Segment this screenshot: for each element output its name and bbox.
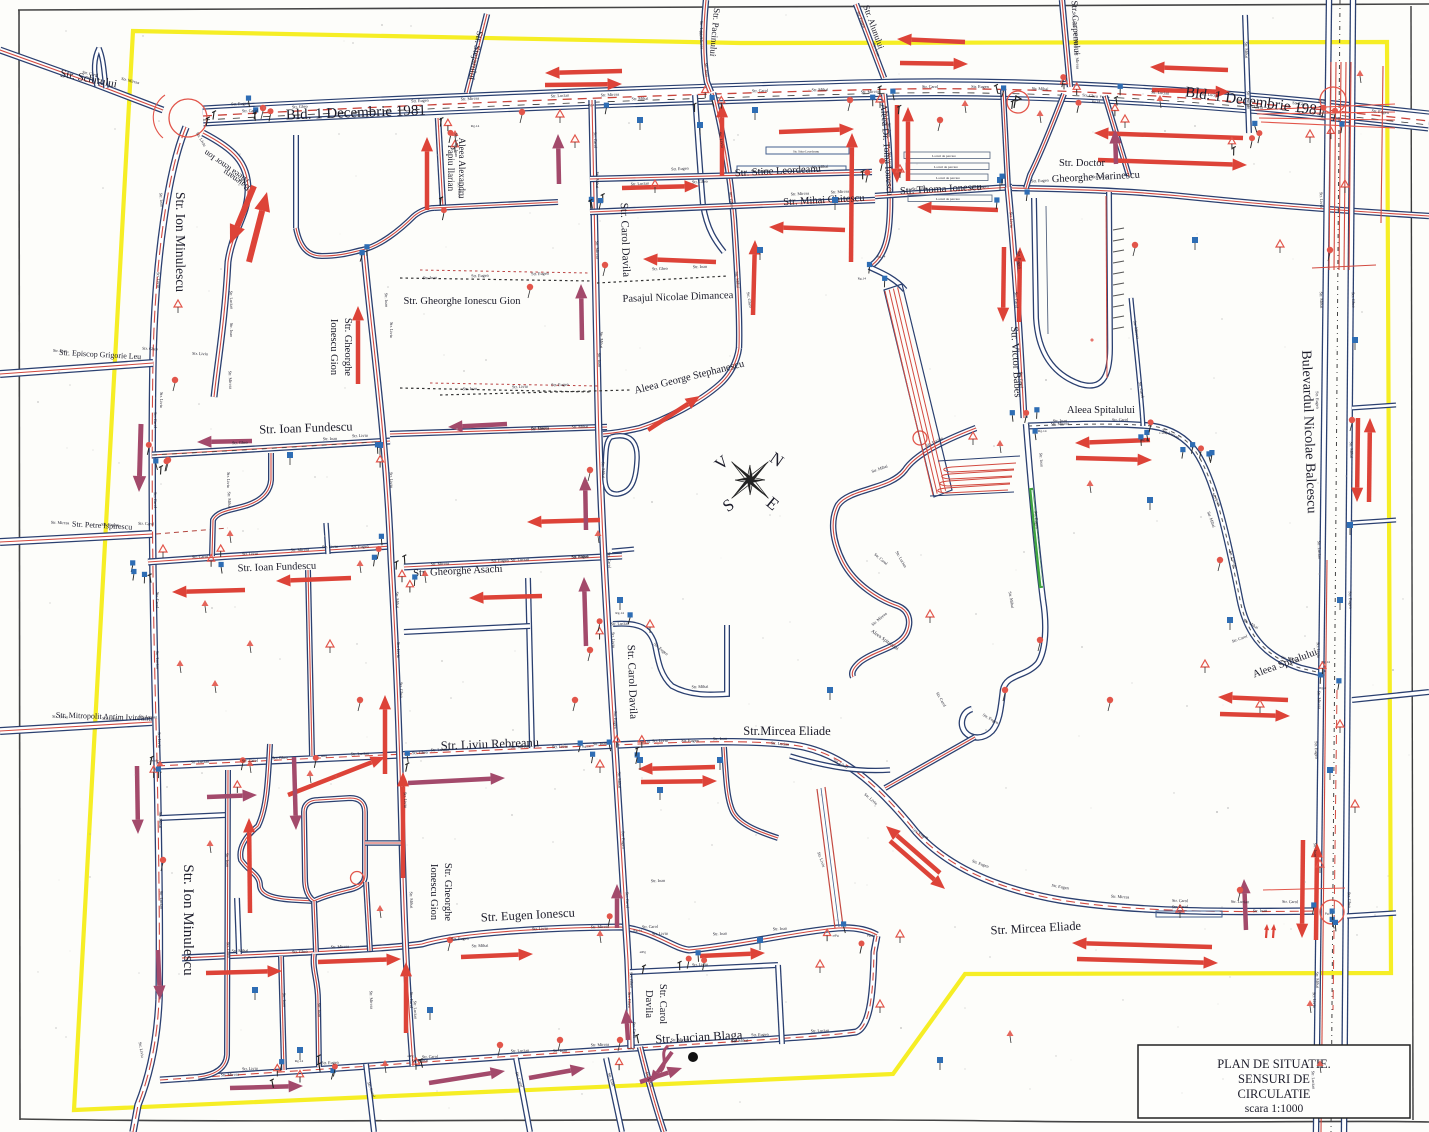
svg-text:Str. Mihai: Str. Mihai [411,1058,429,1064]
svg-text:Str. Gheo: Str. Gheo [629,972,635,988]
svg-text:Rg.14: Rg.14 [633,928,642,932]
svg-text:Rg.14: Rg.14 [1141,438,1150,442]
svg-text:Str. Ioan: Str. Ioan [704,63,710,78]
svg-text:Str. Mihai: Str. Mihai [1349,441,1355,459]
svg-text:Locuri de parcare: Locuri de parcare [936,176,960,180]
svg-text:atPg: atPg [640,950,646,954]
svg-text:Str. Stioe Leordeanu: Str. Stioe Leordeanu [793,150,820,154]
svg-text:Str. Gheo: Str. Gheo [1351,292,1357,308]
svg-text:Str. Eugen: Str. Eugen [1017,251,1023,270]
svg-text:Str. Eugen: Str. Eugen [681,738,699,743]
svg-text:Str. Gheorghe: Str. Gheorghe [342,318,353,376]
svg-text:Str. Liviu: Str. Liviu [532,926,549,932]
svg-text:Str. Ioan: Str. Ioan [53,348,68,354]
svg-text:SENSURI DE: SENSURI DE [1238,1072,1310,1086]
svg-text:Str. Mihai: Str. Mihai [601,461,607,479]
svg-text:Str. Ion Minulescu: Str. Ion Minulescu [173,192,188,292]
svg-text:Str. Eugen: Str. Eugen [751,168,770,174]
svg-text:Str. Mihai: Str. Mihai [811,164,829,170]
svg-text:Pg.4: Pg.4 [1319,686,1326,690]
svg-text:Str. Gheo: Str. Gheo [292,104,308,110]
svg-text:Str. Gheo: Str. Gheo [1347,892,1353,908]
svg-text:Str. Mihai: Str. Mihai [731,1038,749,1044]
svg-text:Str. Ioan: Str. Ioan [384,293,390,308]
svg-text:Str. Doctor: Str. Doctor [1059,158,1106,169]
svg-text:Str. Ioan: Str. Ioan [1313,843,1319,858]
svg-text:Str. Lucian: Str. Lucian [191,759,210,765]
svg-text:Str. Mihai: Str. Mihai [595,172,600,190]
svg-text:Str. Lucian: Str. Lucian [1231,899,1250,904]
svg-text:Str. Eugen: Str. Eugen [471,273,490,279]
svg-text:Str. Mircea: Str. Mircea [228,371,234,390]
svg-text:Str. Gheo: Str. Gheo [692,179,708,185]
svg-text:CIRCULATIE: CIRCULATIE [1238,1087,1311,1101]
svg-text:Str. Mihai: Str. Mihai [631,96,649,102]
svg-text:Str. Mircea: Str. Mircea [591,1042,610,1048]
svg-text:Str. Eugen: Str. Eugen [551,382,570,388]
svg-text:Str. Mircea: Str. Mircea [830,189,849,195]
svg-text:Str. Lucian: Str. Lucian [699,21,704,40]
svg-text:Str. Carol: Str. Carol [657,984,668,1024]
svg-text:Str. Gheo: Str. Gheo [412,750,428,756]
svg-text:Str. Gheorghe Ionescu Gion: Str. Gheorghe Ionescu Gion [403,296,521,307]
svg-text:Rg.14: Rg.14 [1092,100,1101,104]
svg-text:Str. Liviu: Str. Liviu [226,472,231,489]
svg-text:Str. Liviu: Str. Liviu [156,272,162,289]
svg-text:Str. Lucian: Str. Lucian [139,714,159,720]
svg-text:Rg.14: Rg.14 [582,744,591,748]
svg-text:Str. Mircea: Str. Mircea [511,744,530,750]
svg-text:Str. Mircea: Str. Mircea [1075,50,1081,69]
svg-text:Str. Ioan: Str. Ioan [317,1003,323,1018]
svg-text:Str. Carol: Str. Carol [607,552,613,569]
svg-text:Str. Liviu: Str. Liviu [102,716,119,722]
svg-text:Str. Eugen: Str. Eugen [1031,178,1050,184]
svg-text:Str. Eugen: Str. Eugen [671,166,690,172]
svg-text:Str. Lucian: Str. Lucian [511,1048,530,1054]
svg-text:Str. Liviu: Str. Liviu [242,1066,259,1072]
svg-text:Str. Mihai: Str. Mihai [1074,31,1080,49]
svg-text:Str. Lucian: Str. Lucian [351,751,370,757]
svg-text:Str. Mihai: Str. Mihai [1244,41,1250,59]
svg-text:Str. Liviu: Str. Liviu [157,732,162,749]
svg-text:Str. Liviu: Str. Liviu [52,714,69,720]
svg-text:Str. Liviu: Str. Liviu [888,152,894,169]
svg-text:Str. Ioan: Str. Ioan [693,264,708,270]
svg-text:Str. Lucian: Str. Lucian [631,180,651,186]
svg-text:Str. Gheo: Str. Gheo [272,755,288,761]
svg-text:Str. Mihai: Str. Mihai [158,812,163,830]
svg-text:Str. Carol: Str. Carol [138,521,155,527]
svg-text:Str. Lucian: Str. Lucian [551,92,571,98]
svg-text:Str. Carol: Str. Carol [593,132,599,149]
svg-text:Str. Lucian: Str. Lucian [1317,541,1323,560]
svg-text:Str. Mihai: Str. Mihai [599,332,604,350]
svg-text:Str. Carol: Str. Carol [1112,417,1129,422]
svg-text:Str. Eugen: Str. Eugen [621,831,627,850]
svg-text:Str. Mircea: Str. Mircea [221,1072,240,1078]
svg-text:Str. Gheo: Str. Gheo [399,682,405,698]
svg-text:Str. Carol: Str. Carol [1172,898,1189,903]
svg-text:Str. Eugen: Str. Eugen [531,271,550,277]
svg-text:Str. Mircea: Str. Mircea [369,991,375,1010]
svg-text:Str. Mihai: Str. Mihai [471,943,489,949]
svg-text:Str. Liviu: Str. Liviu [652,931,669,937]
svg-text:Str. Liviu: Str. Liviu [159,392,164,409]
svg-text:Ionescu Gion: Ionescu Gion [328,319,339,376]
svg-text:Str. Eugen: Str. Eugen [451,936,470,942]
svg-text:Str. Carol: Str. Carol [242,758,259,764]
svg-text:Str. Liviu: Str. Liviu [389,322,394,339]
svg-text:Str. Mihai: Str. Mihai [409,891,415,909]
svg-text:Locuri de parcare: Locuri de parcare [936,197,960,201]
svg-text:Str. Carol: Str. Carol [1014,292,1020,309]
svg-text:Str. Ioan: Str. Ioan [1253,908,1268,914]
svg-text:Str. Gheo: Str. Gheo [652,266,668,272]
svg-text:Str. Lucian: Str. Lucian [511,557,530,563]
svg-text:Str. Eugen: Str. Eugen [231,101,250,107]
svg-text:Str. Liviu: Str. Liviu [692,962,709,968]
svg-text:Aleea Spitalului: Aleea Spitalului [1067,405,1135,416]
svg-text:Rg.14: Rg.14 [858,277,867,281]
svg-text:Str. Gheo: Str. Gheo [232,440,248,446]
svg-text:Str. Mircea: Str. Mircea [600,92,619,98]
svg-text:Rg.14: Rg.14 [471,124,480,128]
svg-text:Str. Liviu: Str. Liviu [512,384,529,390]
svg-text:Str. Ioan: Str. Ioan [597,353,603,368]
svg-text:Str. Carol: Str. Carol [409,992,414,1009]
svg-text:Str. Liviu: Str. Liviu [1319,192,1325,209]
svg-text:Locuri de parcare: Locuri de parcare [934,165,958,169]
svg-text:Str. Carol: Str. Carol [632,1022,638,1039]
svg-text:Str. Mircea: Str. Mircea [51,520,70,526]
svg-text:Str. Mircea: Str. Mircea [790,191,809,197]
svg-text:Str. Ioan: Str. Ioan [225,853,231,868]
svg-text:Str. Carol: Str. Carol [153,412,158,429]
svg-text:Str. Lucian: Str. Lucian [1311,1071,1317,1090]
svg-text:Str. Ioan: Str. Ioan [463,386,478,392]
svg-text:Rg.14: Rg.14 [877,255,886,259]
svg-text:Str. Ioan: Str. Ioan [593,741,608,747]
svg-text:Str. Liviu: Str. Liviu [389,472,395,489]
svg-text:Str. Mircea: Str. Mircea [1051,421,1070,427]
svg-text:PLAN DE SITUATIE.: PLAN DE SITUATIE. [1217,1057,1331,1071]
svg-text:Str. Mihai: Str. Mihai [1032,86,1050,92]
svg-text:atPg: atPg [833,934,839,938]
svg-text:Pg.4: Pg.4 [1100,95,1107,99]
svg-text:Str. Lucian: Str. Lucian [611,621,630,627]
svg-text:Str. Ioan: Str. Ioan [282,993,288,1008]
svg-text:Str. Eugen: Str. Eugen [411,98,430,104]
svg-text:Str. Gheo: Str. Gheo [226,942,232,958]
svg-text:Rg.14: Rg.14 [1038,429,1047,433]
svg-text:Str. Liviu: Str. Liviu [912,186,929,192]
svg-text:Str. Carol: Str. Carol [922,84,939,89]
svg-text:1 stalp: 1 stalp [149,759,158,763]
svg-text:Str. Carol: Str. Carol [192,554,209,560]
svg-text:Str. Ioan: Str. Ioan [229,323,234,338]
svg-text:Str. Liviu: Str. Liviu [1092,174,1109,180]
svg-text:Str. Mircea: Str. Mircea [1111,894,1130,900]
svg-text:Str. Eugen: Str. Eugen [971,84,989,89]
svg-text:Str. Mircea: Str. Mircea [291,547,310,553]
svg-text:Str. Gheo: Str. Gheo [142,346,158,352]
svg-text:Str. Mircea: Str. Mircea [671,1037,690,1043]
svg-text:Str. Carol: Str. Carol [752,88,769,94]
svg-text:Str. Liviu: Str. Liviu [352,433,369,439]
svg-text:Str. Ioan: Str. Ioan [423,275,438,281]
svg-text:Str. Mihai: Str. Mihai [231,948,249,954]
svg-text:Ionescu Gion: Ionescu Gion [428,864,439,921]
svg-text:Str. Carol: Str. Carol [642,924,659,930]
svg-text:Str. Gheo: Str. Gheo [457,182,463,198]
svg-text:Str. Mihai: Str. Mihai [617,771,623,789]
svg-text:Str. Lucian: Str. Lucian [229,291,235,310]
svg-text:Str. Mihai: Str. Mihai [395,591,401,609]
svg-text:Davila: Davila [643,990,654,1018]
svg-text:Str. Lucian: Str. Lucian [431,747,450,753]
svg-text:Str. Mircea: Str. Mircea [591,924,610,930]
svg-text:Str. Ioan: Str. Ioan [713,931,728,937]
svg-text:Str. Eugen: Str. Eugen [351,544,370,550]
svg-text:Str. Ioan: Str. Ioan [323,436,338,442]
svg-text:Str. Ioan: Str. Ioan [713,736,728,742]
svg-text:Locuri de parcare: Locuri de parcare [932,154,956,158]
svg-text:Str. Ioan: Str. Ioan [454,143,459,158]
svg-text:Str. Liviu: Str. Liviu [1072,12,1078,29]
svg-text:Str. Eugen: Str. Eugen [751,1032,770,1038]
svg-text:Str. Carol: Str. Carol [1172,904,1189,910]
svg-text:Str. Eugen: Str. Eugen [321,1060,340,1066]
svg-text:Str. Mihai: Str. Mihai [1315,971,1321,989]
svg-text:Str. Carol: Str. Carol [155,592,160,609]
svg-text:Rg.14: Rg.14 [615,611,624,615]
svg-text:Str. Eugen: Str. Eugen [613,711,618,729]
svg-text:Pg.4: Pg.4 [588,103,595,107]
svg-text:Str. Mihai: Str. Mihai [691,684,709,690]
svg-text:Str. Eugen: Str. Eugen [101,522,120,528]
svg-text:Str. Mihai: Str. Mihai [227,491,233,509]
svg-text:atPg: atPg [628,1047,634,1051]
svg-text:Str. Eugen: Str. Eugen [491,558,510,564]
svg-text:Str. Liviu: Str. Liviu [652,738,669,744]
svg-text:Str. Liviu: Str. Liviu [396,642,401,659]
svg-text:Str. Eugen: Str. Eugen [1315,391,1321,410]
svg-text:Str. Mihai: Str. Mihai [571,554,589,560]
svg-text:Str. Mihai: Str. Mihai [811,87,829,93]
svg-text:Str. Liviu: Str. Liviu [1009,212,1015,229]
svg-text:Str. Liviu: Str. Liviu [1312,992,1318,1009]
svg-text:Str. Liviu: Str. Liviu [322,544,339,550]
svg-text:Str. Mircea: Str. Mircea [1317,691,1323,710]
svg-text:Str. Mircea: Str. Mircea [331,944,350,950]
svg-text:Str. Eugen: Str. Eugen [971,184,990,190]
svg-text:Str. Carol: Str. Carol [1282,899,1299,904]
svg-text:Str. Gheorghe: Str. Gheorghe [442,863,453,921]
svg-text:Str. Carol: Str. Carol [625,892,631,909]
svg-text:Str. Mihai: Str. Mihai [1319,291,1325,309]
svg-text:Str. Ioan: Str. Ioan [887,123,893,138]
svg-text:Str. Liviu: Str. Liviu [552,744,569,750]
svg-text:Rg.14: Rg.14 [295,1059,304,1063]
svg-text:Str. Gheo: Str. Gheo [292,949,308,955]
svg-text:Str. Eugen: Str. Eugen [1348,591,1354,610]
svg-text:Str. Mircea: Str. Mircea [531,426,550,432]
svg-text:Pg.61: Pg.61 [1318,98,1326,102]
svg-text:Str. Carol: Str. Carol [153,492,158,509]
svg-text:scara 1:1000: scara 1:1000 [1245,1103,1304,1115]
svg-text:Str. Mircea: Str. Mircea [595,241,601,260]
svg-text:Str. Mircea: Str. Mircea [861,89,880,95]
svg-text:Str. Liviu: Str. Liviu [242,551,259,557]
svg-text:Str. Lucian: Str. Lucian [159,891,164,910]
svg-text:atPg: atPg [321,754,327,758]
svg-text:Str. Mircea: Str. Mircea [431,561,450,567]
svg-text:Str. Liviu: Str. Liviu [611,632,617,649]
svg-text:Str. Ioan: Str. Ioan [553,1048,568,1054]
svg-text:Str. Mihai: Str. Mihai [571,424,589,430]
svg-text:Str. Ioan: Str. Ioan [773,926,788,932]
svg-text:Str. Lucian: Str. Lucian [155,651,160,670]
svg-text:Str. Eugen: Str. Eugen [1314,741,1320,760]
svg-text:Str. Ion Minulescu: Str. Ion Minulescu [180,864,196,976]
svg-text:Str. Gheo: Str. Gheo [627,992,632,1008]
svg-text:Str. Liviu: Str. Liviu [1316,642,1322,659]
svg-text:Pg.61: Pg.61 [867,933,875,937]
svg-text:Str. Ioan: Str. Ioan [651,878,666,884]
svg-text:Str. Carol: Str. Carol [242,108,259,114]
svg-text:Str. Liviu: Str. Liviu [403,792,409,809]
svg-text:Str. Mircea: Str. Mircea [460,96,479,102]
svg-text:Str. Lucian: Str. Lucian [811,1028,830,1034]
svg-text:Str. Carol: Str. Carol [1019,372,1025,389]
